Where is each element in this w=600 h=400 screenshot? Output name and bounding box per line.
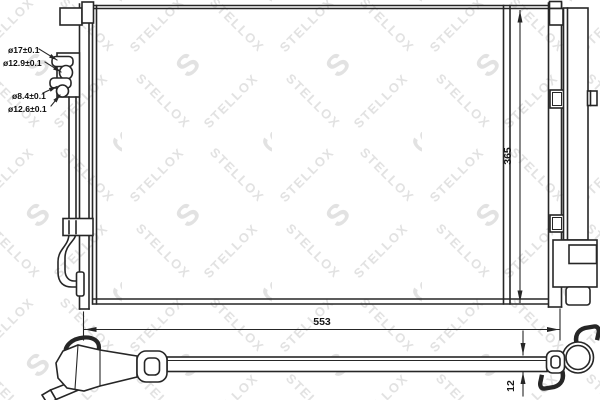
dim-width-label: 553 (313, 316, 331, 328)
drier-side-tab (588, 91, 598, 106)
technical-drawing-condenser: STELLOX STELLOX STELLOX STELLOX S S (0, 0, 600, 400)
mounting-bracket-top-left (60, 8, 82, 25)
dim-height-label: 365 (502, 147, 514, 165)
tank-bracket-top (550, 9, 564, 26)
port-label-top-inner: ø12.9±0.1 (3, 58, 42, 68)
drier-mount-ring-hole (551, 356, 560, 368)
pipe-flange (77, 272, 85, 296)
drier-bottom-cap (566, 287, 590, 305)
pipe-clamp (63, 219, 93, 236)
right-tank-top-cap (550, 2, 562, 9)
port-label-top-outer: ø17±0.1 (8, 45, 40, 55)
mount-ring-hole (145, 358, 160, 375)
port-top-tube (52, 57, 73, 67)
bottom-bar (167, 357, 547, 372)
left-tank-top-cap (82, 2, 94, 23)
drier-circle-outer (563, 342, 594, 373)
port-bottom-boss (57, 85, 69, 97)
port-label-bottom-inner: ø12.6±0.1 (8, 104, 47, 114)
dim-depth-label: 12 (505, 380, 517, 392)
drier-bottom-block-detail (569, 245, 597, 264)
port-label-bottom-outer: ø8.4±0.1 (12, 91, 46, 101)
